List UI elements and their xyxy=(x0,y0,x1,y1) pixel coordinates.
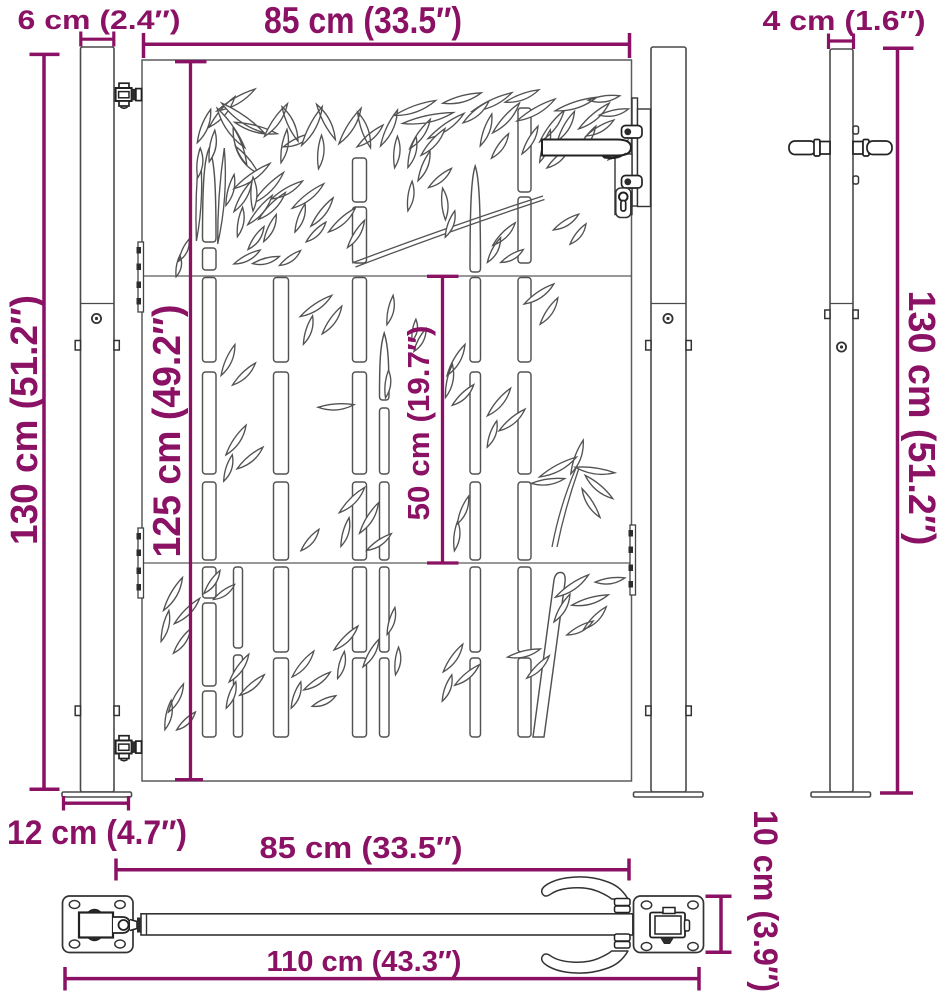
svg-text:110 cm (43.3″): 110 cm (43.3″) xyxy=(267,946,462,978)
svg-text:130 cm (51.2″): 130 cm (51.2″) xyxy=(4,295,46,545)
svg-text:85 cm (33.5″): 85 cm (33.5″) xyxy=(260,830,463,865)
svg-text:6 cm (2.4″): 6 cm (2.4″) xyxy=(18,5,181,35)
svg-text:10 cm (3.9″): 10 cm (3.9″) xyxy=(746,810,784,992)
svg-text:12 cm (4.7″): 12 cm (4.7″) xyxy=(7,814,187,852)
svg-text:4 cm (1.6″): 4 cm (1.6″) xyxy=(763,5,926,36)
svg-text:130 cm (51.2″): 130 cm (51.2″) xyxy=(900,291,939,546)
svg-text:125 cm (49.2″): 125 cm (49.2″) xyxy=(146,305,189,558)
svg-text:50 cm (19.7″): 50 cm (19.7″) xyxy=(401,326,436,521)
svg-text:85 cm (33.5″): 85 cm (33.5″) xyxy=(264,0,462,41)
